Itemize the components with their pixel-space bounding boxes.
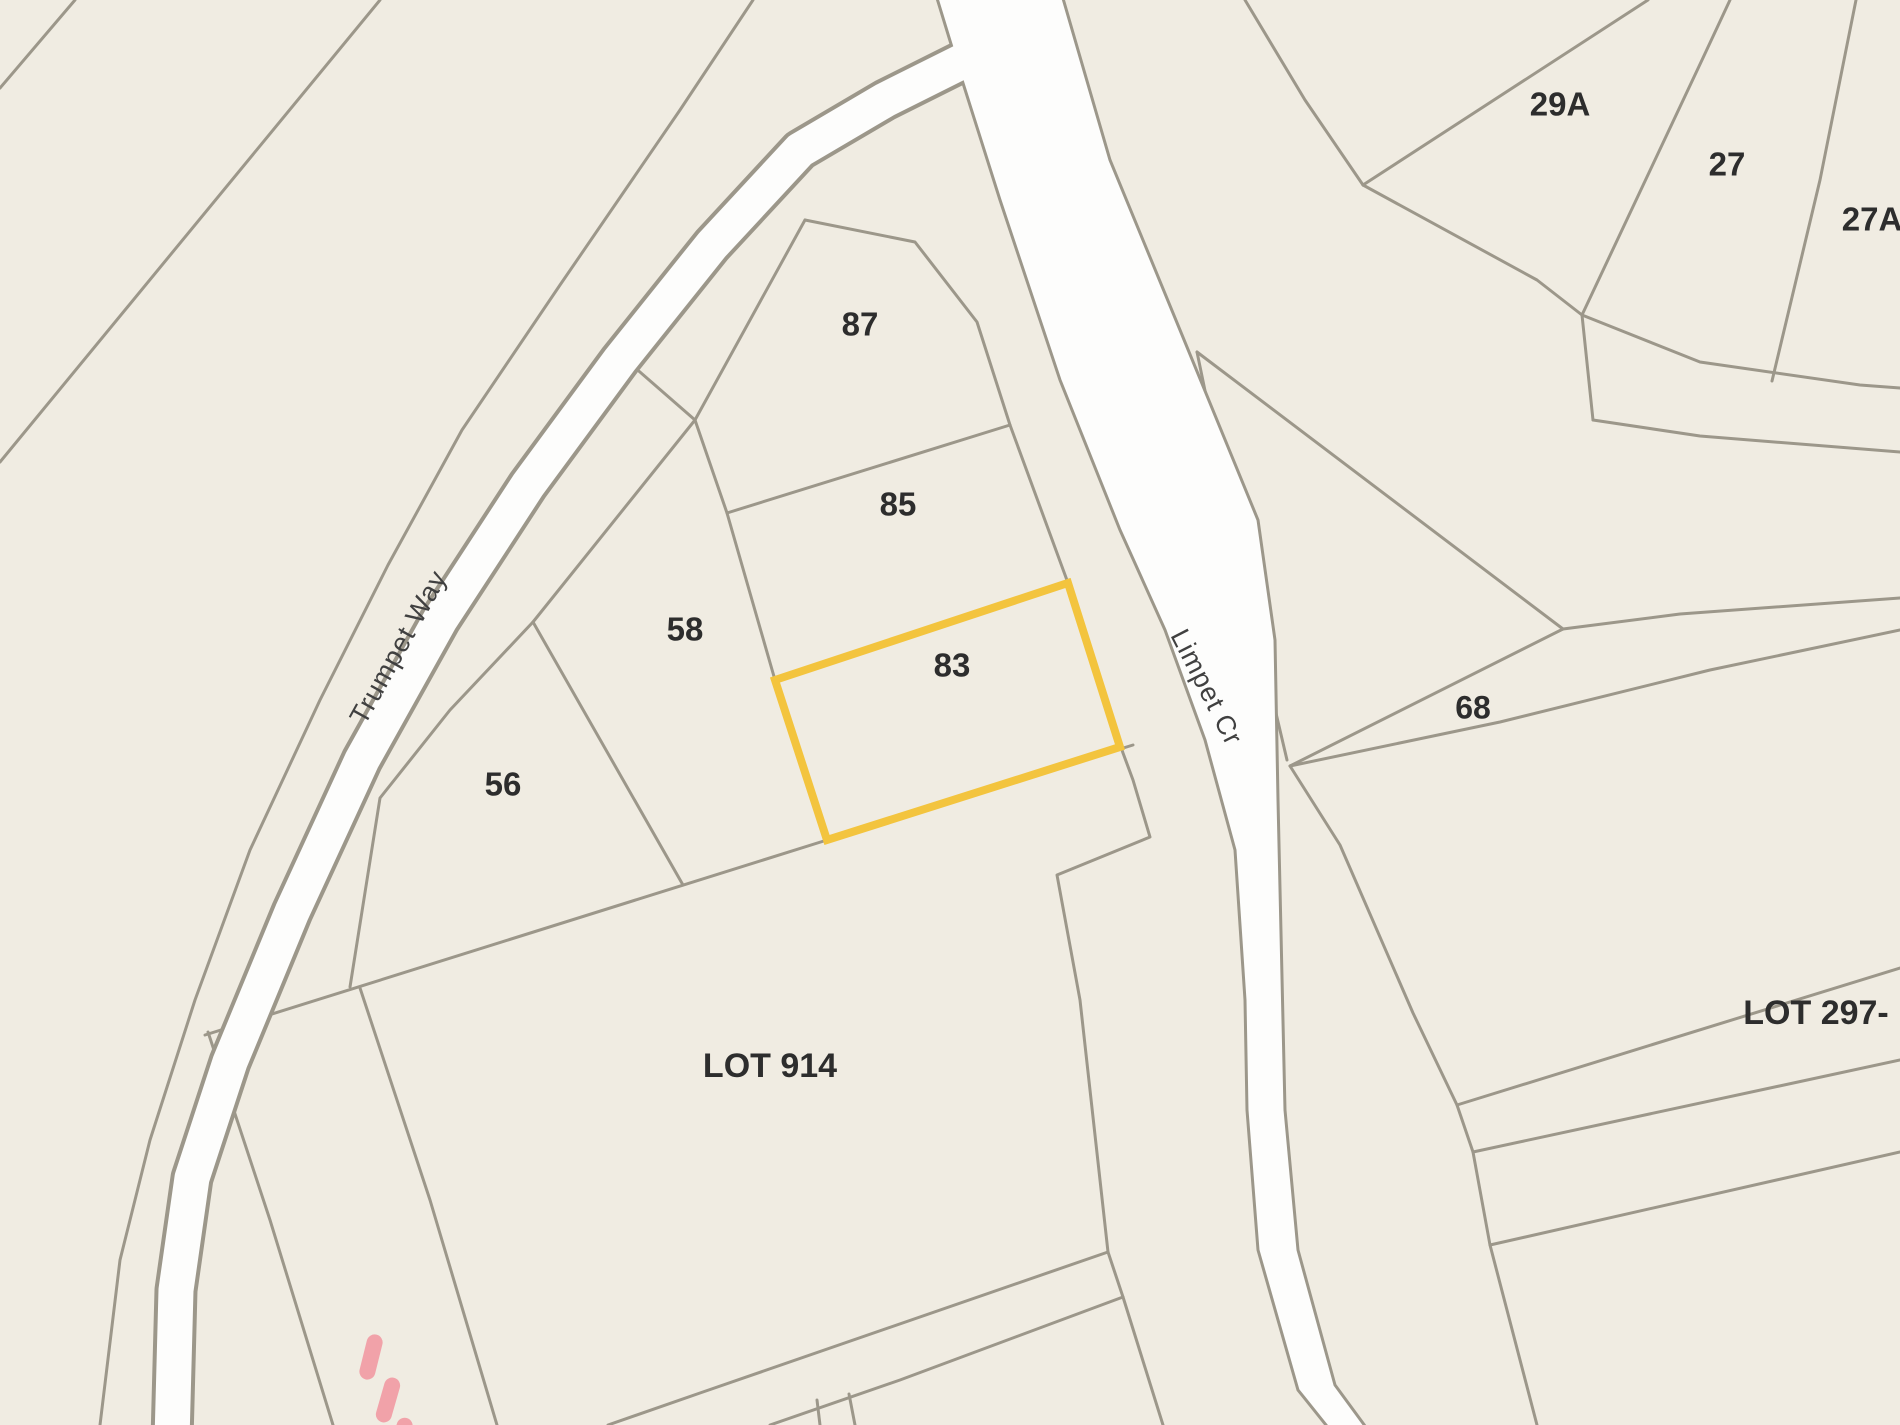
lot-label-68: 68 <box>1455 689 1491 725</box>
cadastral-map: 87858358566829A2727ALOT 914LOT 297-Trump… <box>0 0 1900 1425</box>
lot-label-27: 27 <box>1709 146 1746 183</box>
lot-label-85: 85 <box>880 486 917 523</box>
lot-label-83: 83 <box>934 647 971 684</box>
lot-label-27a: 27A <box>1842 201 1900 238</box>
lot-label-lot-297-: LOT 297- <box>1743 994 1888 1032</box>
lot-label-56: 56 <box>485 766 522 803</box>
lot-label-lot-914: LOT 914 <box>703 1047 837 1085</box>
lot-label-87: 87 <box>842 306 879 343</box>
map-canvas: 87858358566829A2727ALOT 914LOT 297-Trump… <box>0 0 1900 1425</box>
lot-label-58: 58 <box>667 611 704 648</box>
map-background <box>0 0 1900 1425</box>
lot-label-29a: 29A <box>1530 86 1591 123</box>
